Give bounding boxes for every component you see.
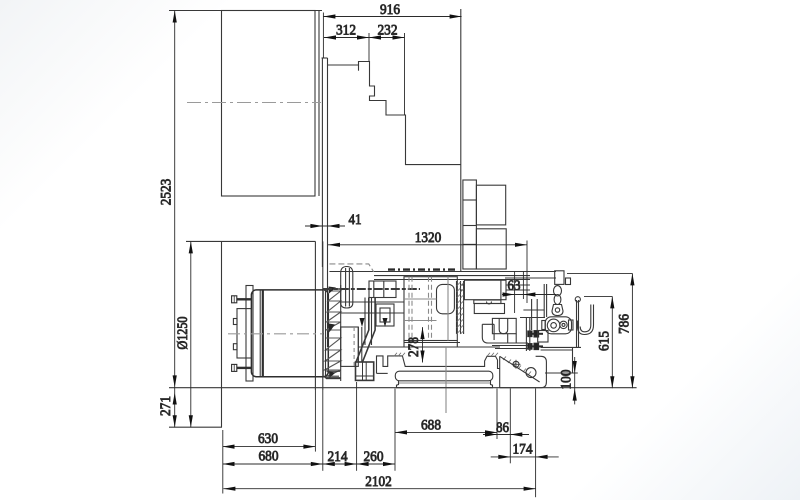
- svg-text:260: 260: [364, 449, 384, 465]
- svg-text:786: 786: [617, 314, 633, 334]
- svg-text:630: 630: [258, 431, 278, 447]
- svg-text:688: 688: [421, 418, 441, 434]
- svg-text:278: 278: [406, 337, 422, 357]
- svg-text:100: 100: [559, 370, 575, 390]
- svg-text:312: 312: [336, 23, 356, 39]
- svg-text:2523: 2523: [159, 179, 175, 206]
- svg-text:63: 63: [508, 278, 521, 294]
- svg-text:214: 214: [328, 449, 348, 465]
- svg-text:916: 916: [380, 2, 400, 18]
- svg-text:174: 174: [513, 442, 533, 458]
- svg-text:41: 41: [349, 212, 362, 228]
- svg-text:615: 615: [597, 331, 613, 351]
- svg-text:86: 86: [496, 420, 509, 436]
- svg-text:1320: 1320: [415, 230, 442, 246]
- svg-text:2102: 2102: [365, 474, 392, 490]
- svg-text:232: 232: [378, 23, 398, 39]
- svg-text:271: 271: [158, 396, 174, 416]
- svg-text:680: 680: [259, 449, 279, 465]
- svg-text:Ø1250: Ø1250: [175, 317, 191, 350]
